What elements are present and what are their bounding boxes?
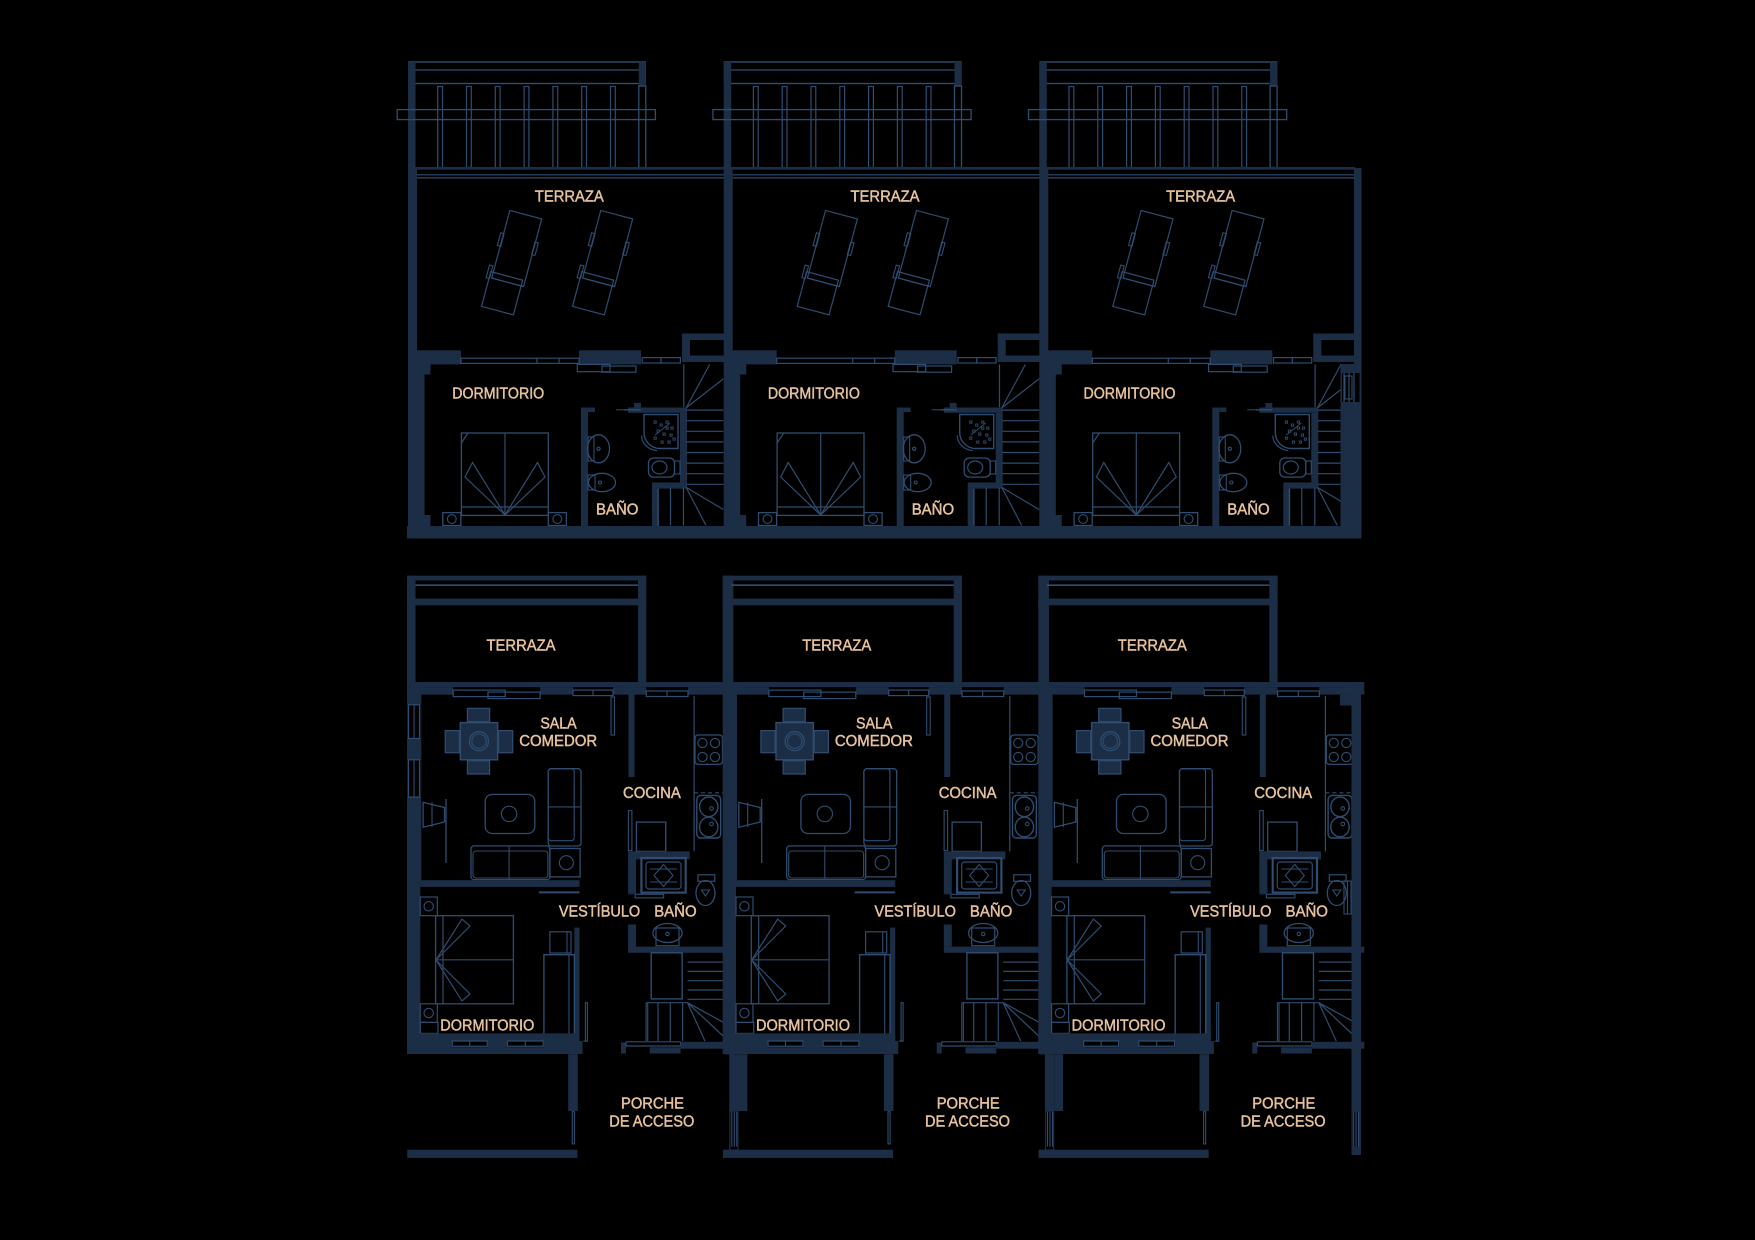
svg-text:VESTÍBULO: VESTÍBULO — [875, 903, 956, 920]
svg-text:COCINA: COCINA — [623, 785, 682, 802]
svg-text:TERRAZA: TERRAZA — [1118, 638, 1188, 655]
svg-text:DORMITORIO: DORMITORIO — [756, 1018, 850, 1035]
svg-text:SALA: SALA — [1172, 716, 1209, 733]
svg-text:PORCHE: PORCHE — [1252, 1095, 1315, 1112]
svg-text:DORMITORIO: DORMITORIO — [1084, 386, 1176, 403]
svg-text:DORMITORIO: DORMITORIO — [768, 386, 860, 403]
svg-text:TERRAZA: TERRAZA — [487, 638, 557, 655]
svg-text:DORMITORIO: DORMITORIO — [440, 1018, 534, 1035]
svg-text:DORMITORIO: DORMITORIO — [1072, 1018, 1166, 1035]
svg-text:BAÑO: BAÑO — [654, 904, 696, 921]
svg-text:COCINA: COCINA — [1254, 785, 1313, 802]
svg-text:VESTÍBULO: VESTÍBULO — [1190, 903, 1271, 920]
svg-text:COMEDOR: COMEDOR — [519, 733, 597, 750]
svg-text:SALA: SALA — [540, 716, 577, 733]
svg-text:TERRAZA: TERRAZA — [535, 189, 605, 206]
svg-text:TERRAZA: TERRAZA — [1166, 189, 1236, 206]
svg-text:COMEDOR: COMEDOR — [1151, 733, 1229, 750]
svg-text:DE ACCESO: DE ACCESO — [609, 1114, 694, 1131]
svg-text:DE ACCESO: DE ACCESO — [925, 1114, 1010, 1131]
svg-text:DORMITORIO: DORMITORIO — [452, 386, 544, 403]
svg-text:TERRAZA: TERRAZA — [802, 638, 872, 655]
svg-text:BAÑO: BAÑO — [1227, 501, 1269, 518]
svg-text:COMEDOR: COMEDOR — [835, 733, 913, 750]
svg-text:BAÑO: BAÑO — [596, 501, 638, 518]
svg-text:BAÑO: BAÑO — [970, 904, 1012, 921]
svg-text:PORCHE: PORCHE — [621, 1095, 684, 1112]
svg-text:BAÑO: BAÑO — [912, 501, 954, 518]
svg-text:TERRAZA: TERRAZA — [851, 189, 921, 206]
svg-text:DE ACCESO: DE ACCESO — [1241, 1114, 1326, 1131]
svg-text:COCINA: COCINA — [939, 785, 998, 802]
svg-text:VESTÍBULO: VESTÍBULO — [559, 903, 640, 920]
svg-text:PORCHE: PORCHE — [937, 1095, 1000, 1112]
svg-text:SALA: SALA — [856, 716, 893, 733]
svg-text:BAÑO: BAÑO — [1286, 904, 1328, 921]
